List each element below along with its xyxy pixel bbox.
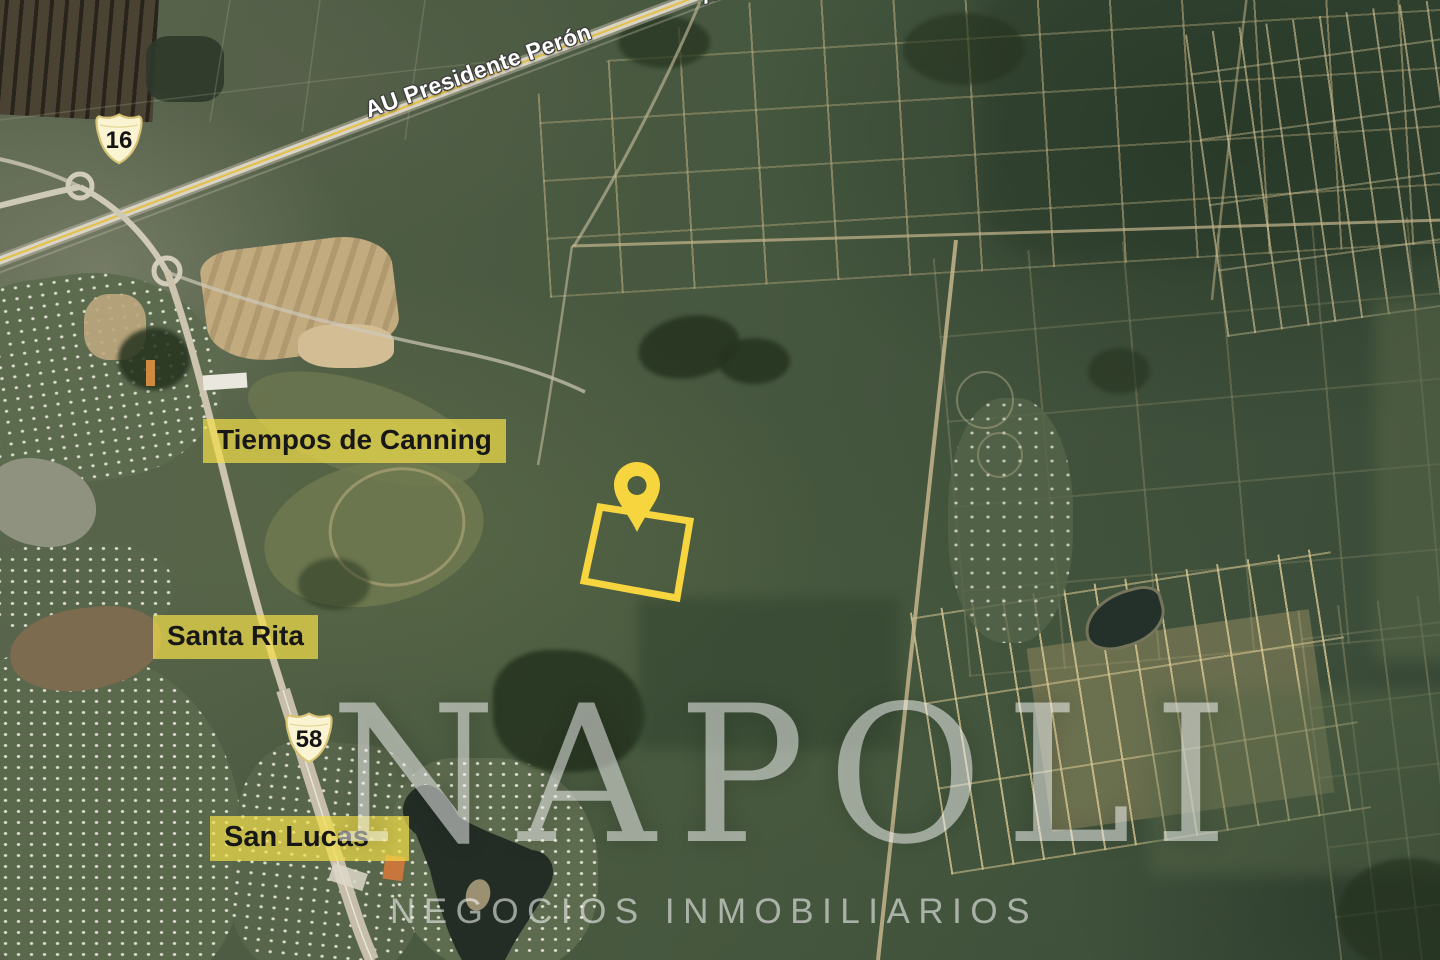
vignette-overlay <box>0 0 1440 960</box>
satellite-map: 16 58 AU Presidente Perón AU Presidente … <box>0 0 1440 960</box>
